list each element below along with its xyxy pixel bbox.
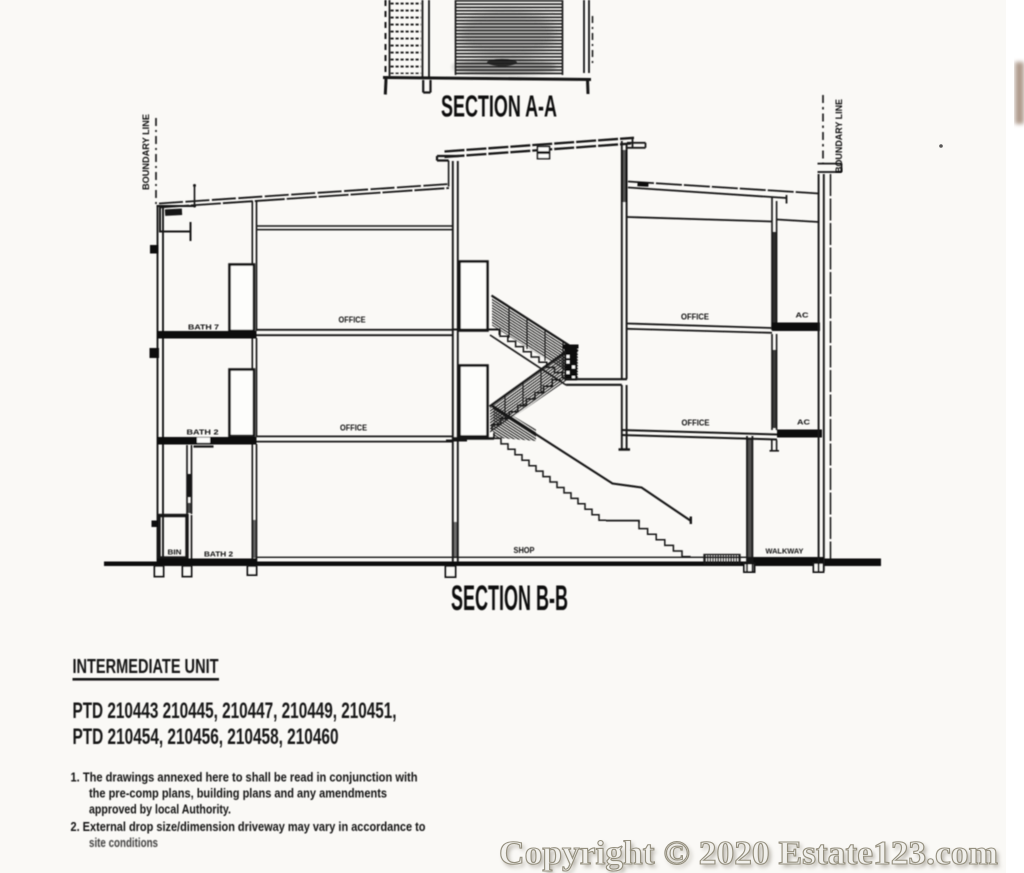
svg-text:BOUNDARY LINE: BOUNDARY LINE xyxy=(834,99,845,173)
svg-text:the pre-comp plans, building p: the pre-comp plans, building plans and a… xyxy=(89,787,387,801)
svg-text:site conditions: site conditions xyxy=(89,836,158,850)
svg-text:SECTION A-A: SECTION A-A xyxy=(441,89,557,124)
svg-text:SHOP: SHOP xyxy=(514,546,536,555)
svg-text:Copyright © 2020 Estate123.com: Copyright © 2020 Estate123.com xyxy=(499,835,998,872)
svg-text:BATH 2: BATH 2 xyxy=(187,428,219,437)
svg-text:PTD 210443 210445, 210447, 210: PTD 210443 210445, 210447, 210449, 21045… xyxy=(73,698,397,723)
svg-text:AC: AC xyxy=(797,418,811,427)
svg-text:BOUNDARY LINE: BOUNDARY LINE xyxy=(141,114,152,190)
svg-text:OFFICE: OFFICE xyxy=(682,419,711,428)
svg-text:BIN: BIN xyxy=(168,550,182,557)
svg-text:OFFICE: OFFICE xyxy=(681,313,710,322)
svg-text:BATH 2: BATH 2 xyxy=(204,550,233,559)
svg-text:SECTION B-B: SECTION B-B xyxy=(451,579,568,618)
svg-text:2. External drop size/dimensi: 2. External drop size/dimension driveway… xyxy=(71,820,426,834)
svg-text:approved by local Authority.: approved by local Authority. xyxy=(89,803,231,817)
svg-text:WALKWAY: WALKWAY xyxy=(766,549,804,556)
svg-text:AC: AC xyxy=(796,311,810,320)
svg-text:OFFICE: OFFICE xyxy=(339,316,367,325)
svg-text:PTD 210454, 210456, 210458, 21: PTD 210454, 210456, 210458, 210460 xyxy=(73,724,339,749)
svg-text:INTERMEDIATE UNIT: INTERMEDIATE UNIT xyxy=(73,656,219,678)
svg-text:BATH 7: BATH 7 xyxy=(188,323,219,332)
svg-text:OFFICE: OFFICE xyxy=(340,424,368,433)
svg-text:1. The drawings annexed here: 1. The drawings annexed here to shall be… xyxy=(71,771,418,785)
